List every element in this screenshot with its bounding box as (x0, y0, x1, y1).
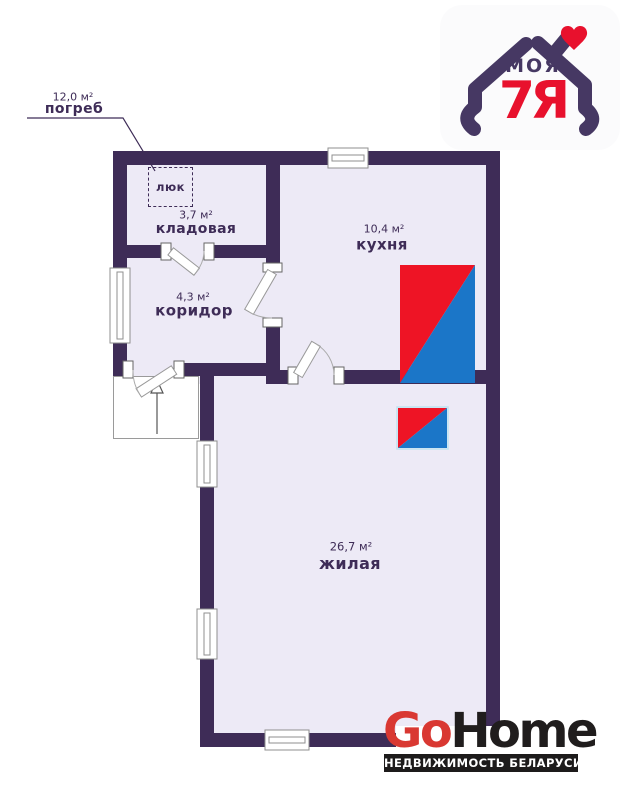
wall-corridor-bottom-right (181, 363, 280, 376)
agency-logo: МОЯ 7Я (440, 5, 620, 150)
window-kitchen-top (328, 148, 368, 168)
stove-living (397, 407, 448, 449)
kitchen-area-label: 10,4 м² (364, 224, 405, 235)
wall-storage-corridor-right (209, 245, 266, 258)
living-area-label: 26,7 м² (330, 541, 373, 553)
window-living-left-lower (197, 609, 217, 659)
window-living-left-upper (197, 441, 217, 487)
floor-plan-page: люк 12,0 м² погреб 3,7 м² кладовая 4,3 м… (0, 0, 620, 800)
storage-area-label: 3,7 м² (179, 210, 213, 221)
stove-kitchen (400, 265, 475, 383)
gohome-logo-go: Go (383, 703, 450, 759)
kitchen-name-label: кухня (356, 238, 408, 253)
agency-logo-word-bottom: 7Я (499, 71, 565, 131)
storage-name-label: кладовая (156, 222, 237, 236)
gohome-tagline-bar: НЕДВИЖИМОСТЬ БЕЛАРУСИ (384, 754, 578, 772)
living-name-label: жилая (319, 556, 381, 572)
wall-divider-upper (266, 151, 280, 266)
gohome-logo-home: Home (450, 703, 596, 759)
wall-top (113, 151, 500, 165)
cellar-hatch-box: люк (148, 167, 193, 207)
cellar-hatch-label: люк (156, 180, 185, 194)
window-corridor-left (110, 268, 130, 343)
corridor-name-label: коридор (155, 304, 233, 319)
gohome-logo: GoHome (383, 707, 596, 755)
window-living-bottom (265, 730, 309, 750)
wall-living-left (200, 370, 214, 747)
wall-right (486, 151, 500, 727)
cellar-name-label: погреб (45, 102, 103, 116)
wall-storage-corridor-left (113, 245, 166, 258)
